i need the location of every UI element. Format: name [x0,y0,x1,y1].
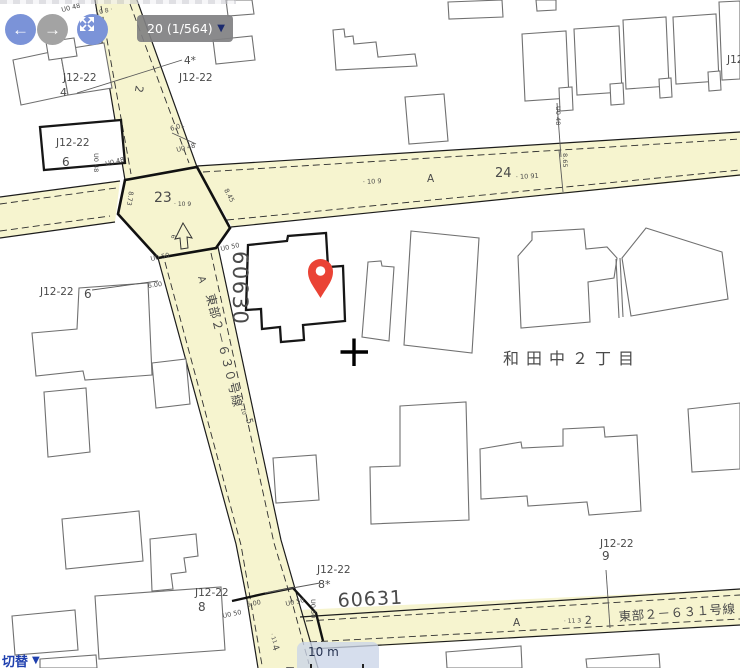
clipped-page-text [0,0,236,4]
back-button[interactable]: ← [5,14,36,45]
scale-label: 10 m [308,645,339,659]
dropdown-arrow-icon: ▼ [217,23,225,34]
parcel-number: 8* [318,578,331,591]
chainage-mark: · 10 9 [174,201,191,208]
parcel-label: J12-22 [178,72,213,84]
road-number: 23 [154,190,172,206]
plat-number: 60631 [337,587,404,612]
pin-hole [316,266,326,276]
layer-switch-button[interactable]: 切替 ▼ [2,651,40,668]
district-name: 和田中２丁目 [503,349,641,368]
parcel-label: J12-22 [55,137,90,149]
crosshair-marker [341,339,369,367]
chainage-mark: · 10 91 [516,172,539,181]
road-letter: A [427,173,435,185]
parcel-number: 4 [60,86,67,99]
chainage-mark: · 11 3 [564,617,582,625]
forward-arrow-icon: → [44,14,61,45]
fullscreen-button[interactable] [77,14,108,45]
width-label: U0 48 [554,106,562,125]
dropdown-arrow-icon: ▼ [32,655,40,666]
parcel-number: 4* [184,55,196,67]
scale-indicator: 10 m [297,642,379,668]
plat-number: 60630 [228,251,252,325]
width-label: U0 48 [92,153,100,172]
width-label: U0 50 [222,608,242,620]
back-arrow-icon: ← [12,14,29,45]
chainage-number: 2 [585,614,592,627]
forward-button[interactable]: → [37,14,68,45]
parcel-label: J12-22 [316,564,351,576]
parcel-number: 6 [84,287,92,301]
parcel-label: J12-22 [39,286,74,298]
parcel-number: 6 [62,155,70,169]
measure-label: 8.65 [561,153,569,167]
scale-bar [310,664,364,668]
chainage-mark: · 10 9 [363,177,382,186]
road-letter: A [513,617,521,629]
measure-label: 6.00 [147,280,162,290]
parcel-label: J12-22 [62,72,97,84]
parcel-number: 9 [602,549,610,563]
width-label: U0 50 [309,599,317,618]
parcel-label: J12-22 [194,587,229,599]
parcel-number: 8 [198,600,206,614]
fullscreen-icon [77,14,97,34]
map-viewer-window: J12-22 4 4* J12-22 J12-22 6 J12-22 6 J12… [0,0,740,668]
layer-switch-label: 切替 [2,651,28,668]
cadastral-map-canvas[interactable]: J12-22 4 4* J12-22 J12-22 6 J12-22 6 J12… [0,0,740,668]
parcel-label: J12-22 [726,54,740,66]
road-number: 24 [495,166,512,181]
page-indicator-label: 20 (1/564) [147,21,213,36]
page-selector[interactable]: 20 (1/564) ▼ [137,15,233,42]
